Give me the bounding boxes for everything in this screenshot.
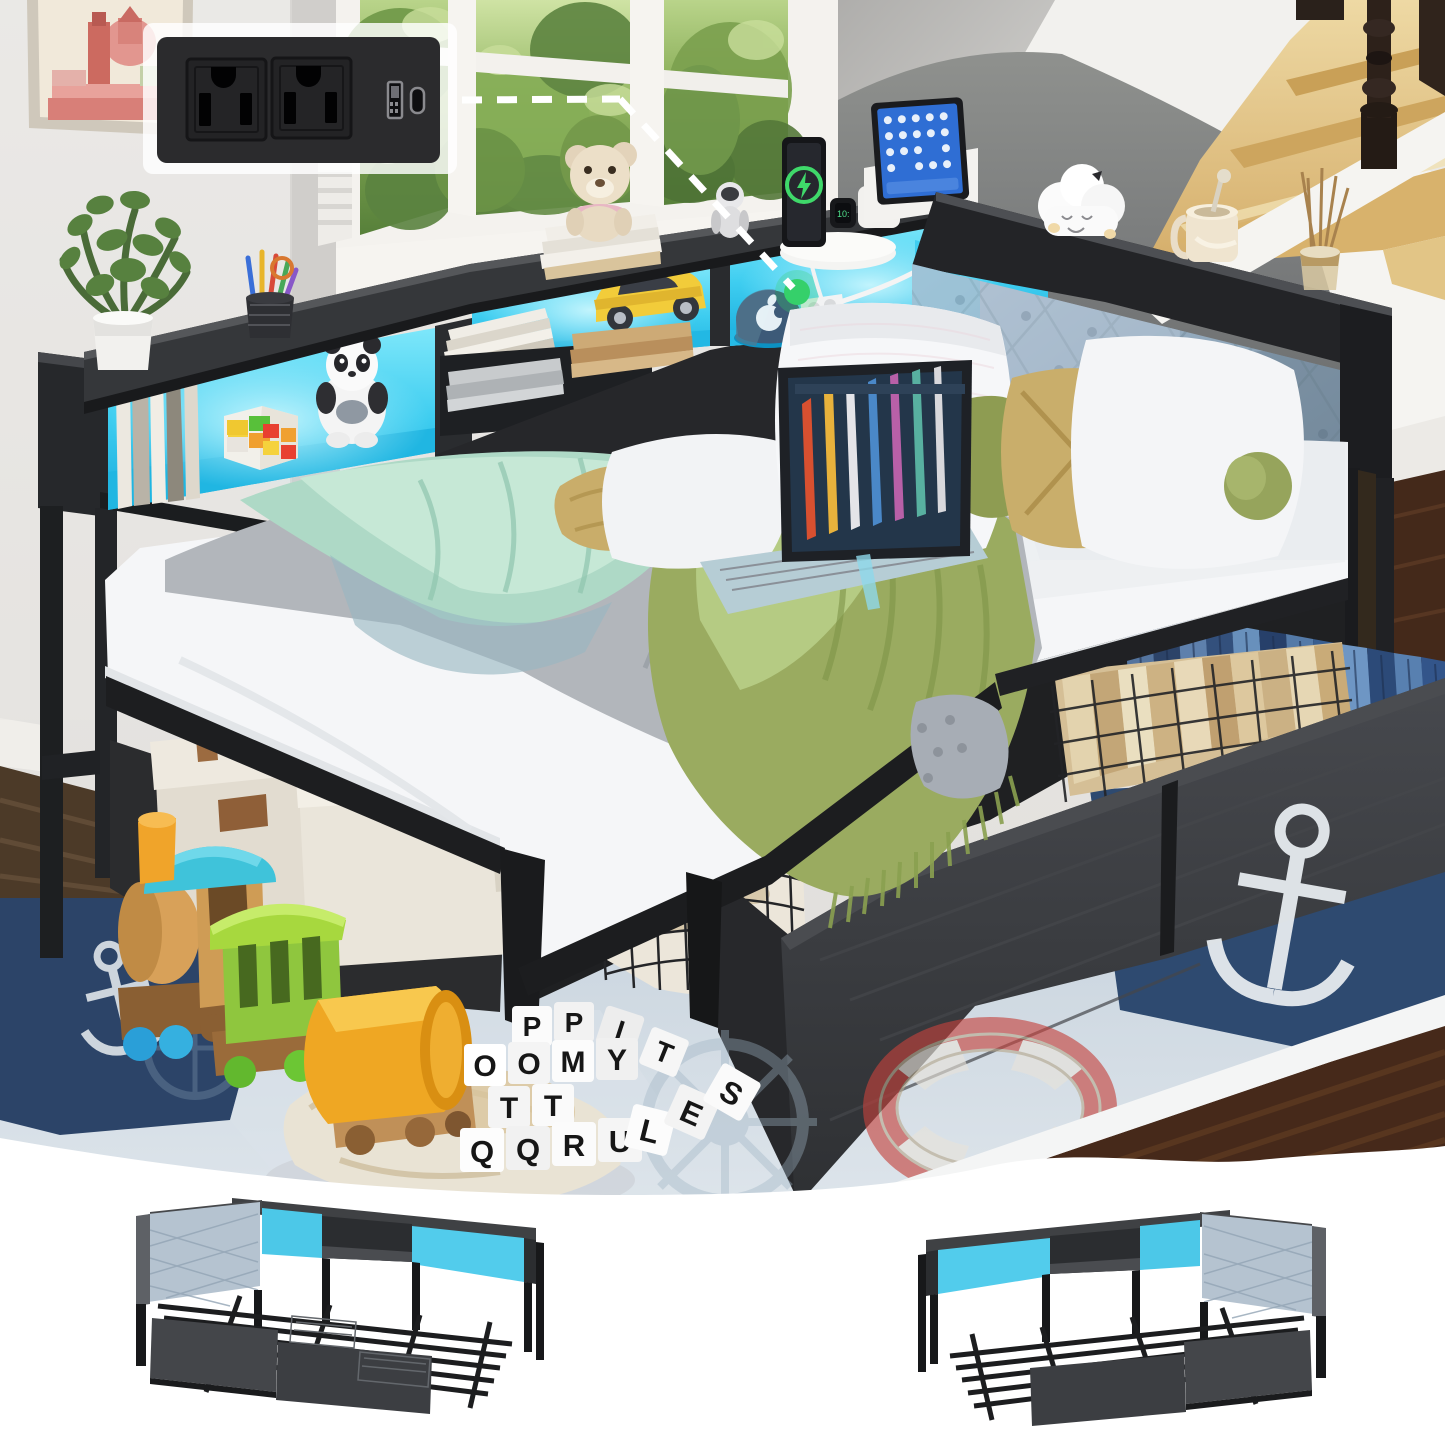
svg-text:O: O — [473, 1050, 496, 1083]
svg-text:P: P — [523, 1011, 542, 1042]
svg-text:M: M — [561, 1046, 586, 1079]
svg-text:T: T — [544, 1090, 562, 1123]
svg-text:Y: Y — [607, 1044, 627, 1077]
svg-text:Q: Q — [470, 1134, 494, 1169]
svg-text:Q: Q — [516, 1132, 540, 1167]
svg-text:R: R — [563, 1128, 585, 1163]
svg-text:P: P — [565, 1007, 584, 1038]
svg-text:10:: 10: — [837, 209, 850, 219]
svg-text:T: T — [500, 1092, 518, 1125]
svg-text:O: O — [517, 1048, 540, 1081]
